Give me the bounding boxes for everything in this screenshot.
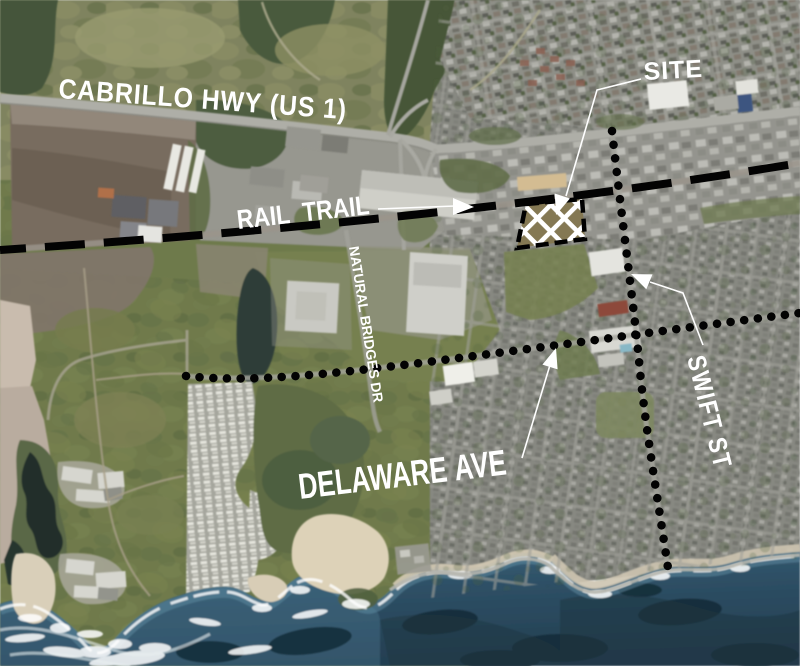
- svg-text:SITE: SITE: [643, 55, 704, 86]
